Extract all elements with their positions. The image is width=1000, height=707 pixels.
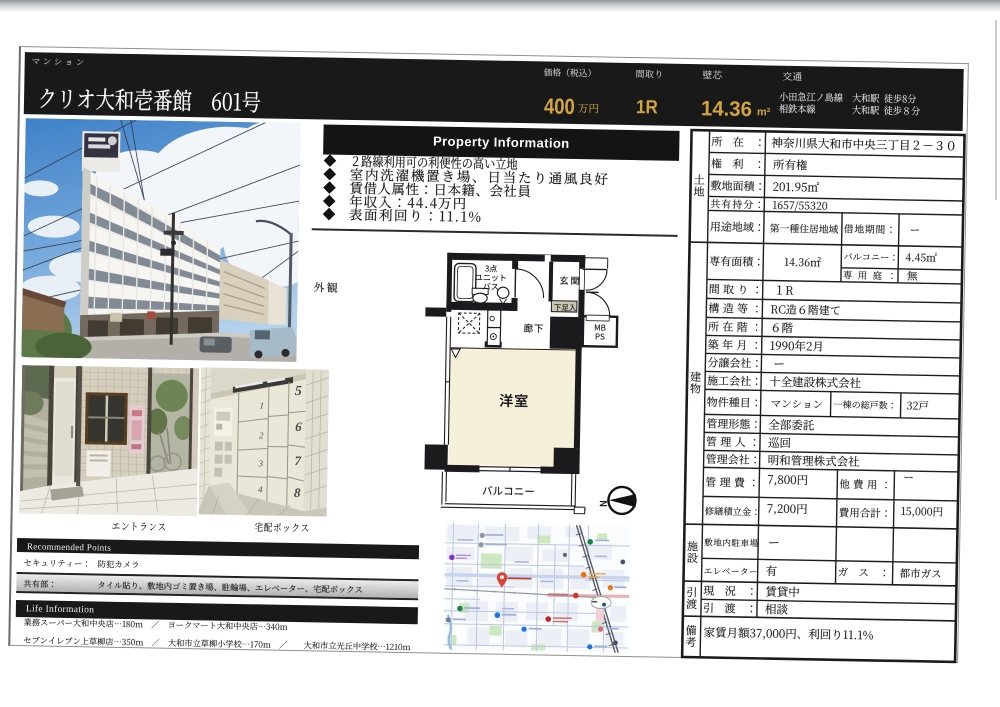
svg-text:1: 1 xyxy=(259,400,264,410)
svg-text:4: 4 xyxy=(258,484,263,494)
svg-text:6: 6 xyxy=(295,419,302,434)
svg-text:8: 8 xyxy=(294,485,301,500)
svg-text:5: 5 xyxy=(295,384,302,399)
svg-text:2: 2 xyxy=(259,430,264,440)
svg-text:2: 2 xyxy=(817,257,821,264)
svg-text:7: 7 xyxy=(294,453,301,468)
svg-text:3: 3 xyxy=(257,458,263,468)
